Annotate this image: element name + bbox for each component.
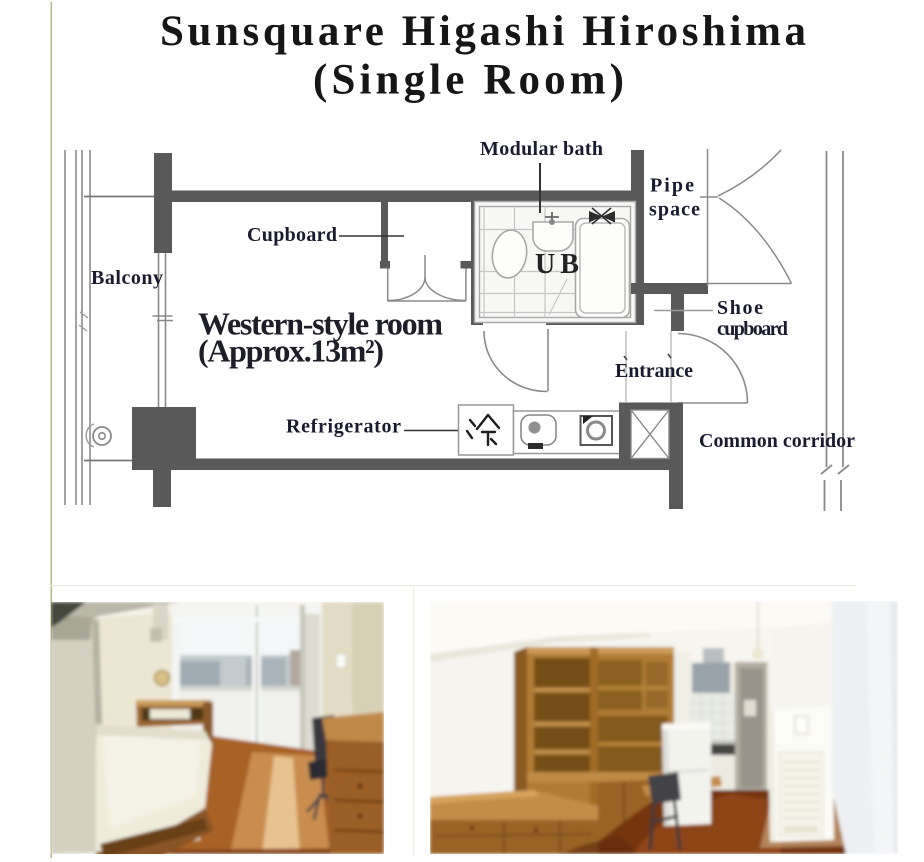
- svg-text:Entrance: Entrance: [615, 360, 693, 382]
- svg-text:Balcony: Balcony: [91, 267, 163, 289]
- svg-text:Pipe: Pipe: [650, 175, 694, 197]
- svg-text:Shoe: Shoe: [717, 297, 763, 319]
- svg-text:Common corridor: Common corridor: [699, 430, 855, 452]
- svg-text:Cupboard: Cupboard: [247, 224, 337, 246]
- svg-text:(Approx.13m²): (Approx.13m²): [198, 333, 384, 369]
- svg-text:cupboard: cupboard: [717, 318, 788, 340]
- svg-text:Sunsquare Higashi Hiroshima: Sunsquare Higashi Hiroshima: [160, 8, 806, 55]
- svg-text:UB: UB: [535, 249, 584, 280]
- svg-text:Refrigerator: Refrigerator: [286, 416, 401, 438]
- svg-text:(Single Room): (Single Room): [313, 57, 624, 104]
- svg-text:space: space: [649, 199, 700, 221]
- svg-text:Modular bath: Modular bath: [480, 138, 603, 160]
